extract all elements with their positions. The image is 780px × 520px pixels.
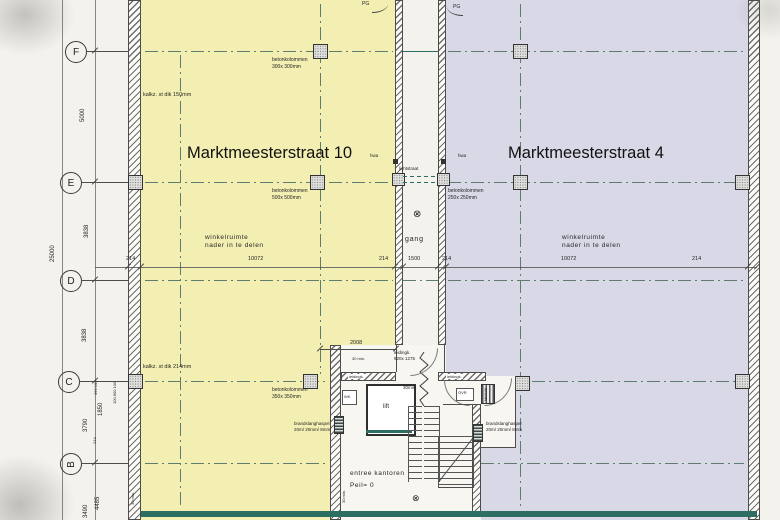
column-e-wall-right bbox=[735, 175, 750, 190]
gridline-e-left bbox=[145, 182, 393, 183]
dim-c-b: 3790 bbox=[83, 419, 91, 432]
dim-c-small: 214 bbox=[92, 437, 97, 444]
scan-shadow-top-left bbox=[0, 0, 75, 55]
room-label-lift: lift bbox=[383, 404, 389, 412]
symbol-circle-x-corridor: ⊗ bbox=[413, 208, 421, 221]
grid-bubble-f: F bbox=[65, 41, 87, 63]
gridline-v1 bbox=[180, 55, 181, 505]
note-col-250: betonkolommen 250x 250mm bbox=[448, 188, 484, 201]
gridline-c-right bbox=[532, 381, 744, 382]
hwa-dot-left bbox=[393, 159, 398, 164]
hwa-dot-right bbox=[441, 159, 446, 164]
label-hose-right: brandslanghaspel 20m/ 20mm/ 8mm bbox=[486, 421, 522, 433]
dim-b-2: 3490 bbox=[83, 505, 91, 518]
skylight-dash-1 bbox=[403, 176, 438, 177]
grid-leader-b bbox=[81, 463, 128, 464]
title-marktmeesterstraat-10: Marktmeesterstraat 10 bbox=[187, 144, 352, 163]
hose-reel-right bbox=[473, 424, 483, 442]
label-level: Peil= 0 bbox=[350, 482, 374, 490]
dim-overall: 25000 bbox=[50, 245, 58, 262]
grid-leader-d bbox=[81, 280, 128, 281]
symbol-circle-x-entrance: ⊗ bbox=[412, 493, 420, 505]
partition-notch-right bbox=[515, 376, 516, 448]
label-wk: WK bbox=[344, 394, 350, 399]
gridline-e-right bbox=[448, 182, 744, 183]
label-duct-right: leidingk. bbox=[446, 374, 463, 379]
gridline-b-left bbox=[145, 463, 328, 464]
dim-d-c: 3838 bbox=[82, 329, 90, 342]
column-e1 bbox=[310, 175, 325, 190]
dim-line-vertical-outer bbox=[62, 0, 63, 520]
partition-notch-bottom bbox=[481, 447, 516, 448]
room-label-shop-left: winkelruimte nader in te delen bbox=[205, 234, 264, 251]
dim-line-entrance bbox=[320, 349, 396, 350]
gridline-f-corridor bbox=[403, 51, 438, 52]
note-col-500: betonkolommen 500x 500mm bbox=[272, 188, 308, 201]
label-fire-top: 30 min. bbox=[352, 356, 365, 361]
label-fire-bottom-left: 30 min. bbox=[130, 492, 135, 505]
column-e-wall-left bbox=[128, 175, 143, 190]
column-c2 bbox=[515, 376, 530, 391]
label-skylight: lichtstraat bbox=[399, 166, 418, 172]
grid-leader-c bbox=[79, 381, 128, 382]
dim-line-horizontal bbox=[95, 267, 757, 268]
gridline-d-left bbox=[145, 280, 393, 281]
grid-label-e: E bbox=[68, 178, 75, 189]
grid-leader-e bbox=[81, 182, 128, 183]
gridline-f-left bbox=[145, 51, 393, 52]
wall-stub-right bbox=[444, 345, 445, 372]
column-f2 bbox=[513, 44, 528, 59]
wall-right bbox=[748, 0, 760, 520]
label-entrance: entree kantoren bbox=[350, 470, 405, 478]
dim-wall-r2: 214 bbox=[442, 256, 451, 263]
column-e-corridor-right bbox=[437, 173, 450, 186]
note-col-350: betonkolommen 350x 350mm bbox=[272, 387, 308, 400]
dim-wall-r: 214 bbox=[692, 256, 701, 263]
dim-c-inner: 1850 bbox=[98, 403, 106, 416]
column-e-corridor-left bbox=[392, 173, 405, 186]
gridline-d-right bbox=[448, 280, 744, 281]
gridline-f-right bbox=[448, 51, 744, 52]
hose-reel-left bbox=[334, 416, 344, 434]
label-ovr: OVR bbox=[458, 390, 467, 395]
title-marktmeesterstraat-4: Marktmeesterstraat 4 bbox=[508, 144, 664, 163]
facade-band-bottom bbox=[141, 511, 757, 517]
label-mk: MK/WK bbox=[483, 387, 488, 401]
room-label-shop-right: winkelruimte nader in te delen bbox=[562, 234, 621, 251]
dim-span-l: 10072 bbox=[248, 256, 263, 263]
dim-entrance: 2008 bbox=[350, 340, 362, 347]
dim-corridor-w: 1500 bbox=[408, 256, 420, 263]
stairs-upper-flight bbox=[408, 406, 440, 482]
dim-c-ticks-a: 390 100 bbox=[93, 381, 98, 395]
skylight-dash-2 bbox=[403, 182, 438, 183]
grid-label-b: B bbox=[65, 461, 76, 468]
note-wall-214: kalkz. st dik 214mm bbox=[143, 364, 191, 371]
grid-bubble-e: E bbox=[60, 172, 82, 194]
dim-b-1: 4485 bbox=[95, 497, 103, 510]
note-wall-150: kalkz. st dik 150mm bbox=[143, 92, 191, 99]
column-c-wall-right bbox=[735, 374, 750, 389]
grid-label-f: F bbox=[73, 47, 79, 58]
label-pg-left: PG bbox=[362, 1, 369, 8]
note-col-300: betonkolommen 300x 300mm bbox=[272, 57, 308, 70]
room-label-corridor: gang bbox=[405, 235, 424, 244]
dim-wall-l: 214 bbox=[126, 256, 135, 263]
label-fire-30min: 30min. bbox=[403, 385, 417, 391]
partition-room-divider bbox=[443, 404, 472, 405]
grid-bubble-d: D bbox=[60, 270, 82, 292]
stairs-upper-gap bbox=[422, 406, 424, 482]
lift-front-bar bbox=[366, 430, 412, 433]
gridline-d-corridor bbox=[403, 280, 438, 281]
dim-f-e: 5000 bbox=[80, 109, 88, 122]
dim-wall-l2: 214 bbox=[379, 256, 388, 263]
grid-bubble-c: C bbox=[58, 371, 80, 393]
stairs-bottom-line bbox=[438, 487, 472, 488]
column-f1 bbox=[313, 44, 328, 59]
label-duct-left: leidingk. bbox=[348, 374, 365, 379]
dim-c-ticks-b: 100 800 100 bbox=[112, 382, 117, 404]
label-hwa-left: hwa bbox=[370, 153, 378, 159]
dim-span-r: 10072 bbox=[561, 256, 576, 263]
column-c-wall-left bbox=[128, 374, 143, 389]
grid-label-c: C bbox=[65, 377, 72, 388]
floor-plan: F E D C B Marktmeesterstraat 10 Marktmee… bbox=[0, 0, 780, 520]
grid-label-d: D bbox=[67, 276, 74, 287]
dim-e-d: 3838 bbox=[84, 225, 92, 238]
label-hose-left: brandslanghaspel 20m/ 20mm/ 8mm bbox=[294, 421, 330, 433]
column-e2 bbox=[513, 175, 528, 190]
label-hwa-right: hwa bbox=[458, 153, 466, 159]
gridline-c-left bbox=[145, 381, 328, 382]
label-fire-bottom-center: 30 min. bbox=[341, 490, 346, 503]
grid-bubble-b: B bbox=[60, 453, 82, 475]
